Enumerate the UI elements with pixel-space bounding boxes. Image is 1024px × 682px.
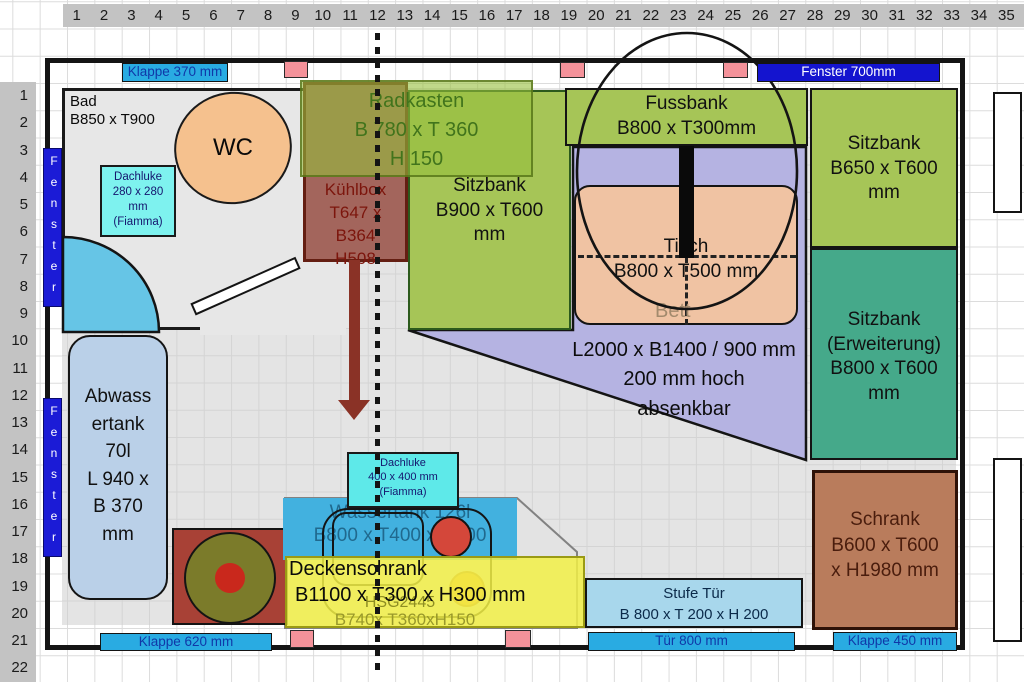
fussbank-label: FussbankB800 x T300mm (567, 90, 806, 141)
column-header[interactable]: 31 (883, 4, 910, 27)
klappe-370-bar[interactable]: Klappe 370 mm (122, 63, 228, 82)
sitzbank-erweiterung-label: Sitzbank(Erweiterung)B800 x T600mm (812, 250, 956, 407)
column-header[interactable]: 13 (391, 4, 418, 27)
column-header[interactable]: 6 (200, 4, 227, 27)
row-ruler: 12345678910111213141516171819202122 (0, 82, 36, 682)
column-header[interactable]: 28 (801, 4, 828, 27)
column-header[interactable]: 23 (665, 4, 692, 27)
column-header[interactable]: 35 (993, 4, 1020, 27)
column-header[interactable]: 15 (446, 4, 473, 27)
stove-burner-center (215, 563, 245, 593)
row-header[interactable]: 4 (0, 164, 36, 191)
row-header[interactable]: 20 (0, 600, 36, 627)
column-header[interactable]: 19 (555, 4, 582, 27)
deckenschrank-label-1: Deckenschrank (289, 558, 427, 581)
column-header[interactable]: 26 (747, 4, 774, 27)
hsg-burner-large (430, 516, 472, 558)
column-header[interactable]: 2 (90, 4, 117, 27)
row-header[interactable]: 13 (0, 409, 36, 436)
fussbank[interactable]: FussbankB800 x T300mm (565, 88, 808, 146)
row-ruler-band: 12345678910111213141516171819202122 (0, 82, 36, 682)
column-header[interactable]: 33 (938, 4, 965, 27)
column-header[interactable]: 27 (774, 4, 801, 27)
column-ruler-band: 1234567891011121314151617181920212223242… (63, 4, 1024, 27)
column-header[interactable]: 32 (911, 4, 938, 27)
row-header[interactable]: 17 (0, 518, 36, 545)
row-header[interactable]: 18 (0, 545, 36, 572)
column-header[interactable]: 5 (172, 4, 199, 27)
sitzbank-rechts-label: SitzbankB650 x T600mm (812, 90, 956, 206)
row-header[interactable]: 16 (0, 491, 36, 518)
row-header[interactable]: 1 (0, 82, 36, 109)
tuer-800-bar[interactable]: Tür 800 mm (588, 632, 795, 651)
bad-door-opening-bottom (200, 326, 346, 335)
row-header[interactable]: 10 (0, 327, 36, 354)
row-header[interactable]: 7 (0, 246, 36, 273)
column-header[interactable]: 12 (364, 4, 391, 27)
wall-marker-bottom-1 (290, 630, 314, 648)
column-header[interactable]: 1 (63, 4, 90, 27)
vehicle-centerline (375, 33, 380, 673)
column-header[interactable]: 16 (473, 4, 500, 27)
column-header[interactable]: 18 (528, 4, 555, 27)
schrank[interactable]: SchrankB600 x T600x H1980 mm (812, 470, 958, 630)
fenster-left-bottom-bar[interactable]: Fenster (43, 398, 62, 557)
column-ruler: 1234567891011121314151617181920212223242… (63, 4, 1024, 27)
radkasten-label: RadkastenB 780 x T 360H 150 (302, 82, 531, 174)
column-header[interactable]: 20 (583, 4, 610, 27)
column-header[interactable]: 9 (282, 4, 309, 27)
row-header[interactable]: 21 (0, 627, 36, 654)
schrank-label: SchrankB600 x T600x H1980 mm (815, 473, 955, 584)
dachluke-280[interactable]: Dachluke280 x 280mm(Fiamma) (100, 165, 176, 237)
column-header[interactable]: 34 (965, 4, 992, 27)
row-header[interactable]: 9 (0, 300, 36, 327)
column-header[interactable]: 11 (336, 4, 363, 27)
wc-label: WC (176, 94, 290, 202)
sitzbank-erweiterung[interactable]: Sitzbank(Erweiterung)B800 x T600mm (810, 248, 958, 460)
stufe-tuer-label: Stufe TürB 800 x T 200 x H 200 (587, 580, 801, 625)
column-header[interactable]: 29 (829, 4, 856, 27)
dachluke-400-label: Dachluke400 x 400 mm(Fiamma) (349, 454, 457, 499)
row-header[interactable]: 11 (0, 355, 36, 382)
fenster-700-bar[interactable]: Fenster 700mm (757, 63, 940, 82)
klappe-450-bar[interactable]: Klappe 450 mm (833, 632, 957, 651)
column-header[interactable]: 4 (145, 4, 172, 27)
klappe-620-bar[interactable]: Klappe 620 mm (100, 633, 272, 651)
radkasten[interactable]: RadkastenB 780 x T 360H 150 (300, 80, 533, 177)
row-header[interactable]: 22 (0, 654, 36, 681)
column-header[interactable]: 22 (637, 4, 664, 27)
arrow-head-icon (338, 400, 370, 420)
stove[interactable] (172, 528, 288, 625)
row-header[interactable]: 19 (0, 573, 36, 600)
arrow-shaft (349, 260, 360, 402)
column-header[interactable]: 25 (719, 4, 746, 27)
row-header[interactable]: 2 (0, 109, 36, 136)
column-header[interactable]: 3 (118, 4, 145, 27)
hsg-dim-label: B740x T360xH150 (315, 610, 495, 630)
column-header[interactable]: 14 (418, 4, 445, 27)
column-header[interactable]: 21 (610, 4, 637, 27)
floorplan-canvas: 1234567891011121314151617181920212223242… (0, 0, 1024, 682)
right-exterior-window-top[interactable] (993, 92, 1022, 213)
bett-label: Bett (655, 300, 725, 323)
column-header[interactable]: 8 (254, 4, 281, 27)
wall-marker-top-2 (560, 62, 585, 78)
wall-marker-top-3 (723, 62, 748, 78)
row-header[interactable]: 6 (0, 218, 36, 245)
wall-marker-bottom-2 (505, 630, 531, 648)
abwassertank[interactable]: Abwassertank70lL 940 xB 370mm (68, 335, 168, 600)
wall-marker-top-1 (284, 61, 308, 78)
bett-dimensions: L2000 x B1400 / 900 mm200 mm hochabsenkb… (558, 336, 810, 424)
row-header[interactable]: 5 (0, 191, 36, 218)
tisch-leg (679, 146, 694, 258)
deckenschrank-label-2: B1100 x T300 x H300 mm (295, 584, 526, 607)
dachluke-280-label: Dachluke280 x 280mm(Fiamma) (102, 167, 174, 230)
row-header[interactable]: 15 (0, 464, 36, 491)
abwassertank-label: Abwassertank70lL 940 xB 370mm (70, 337, 166, 548)
row-header[interactable]: 3 (0, 137, 36, 164)
row-header[interactable]: 14 (0, 436, 36, 463)
stufe-tuer[interactable]: Stufe TürB 800 x T 200 x H 200 (585, 578, 803, 628)
fenster-left-top-bar[interactable]: Fenster (43, 148, 62, 307)
row-header[interactable]: 8 (0, 273, 36, 300)
column-header[interactable]: 10 (309, 4, 336, 27)
column-header[interactable]: 17 (501, 4, 528, 27)
right-exterior-window-bottom[interactable] (993, 458, 1022, 642)
sitzbank-rechts[interactable]: SitzbankB650 x T600mm (810, 88, 958, 248)
wc-toilet[interactable]: WC (162, 79, 304, 216)
column-header[interactable]: 30 (856, 4, 883, 27)
dachluke-400[interactable]: Dachluke400 x 400 mm(Fiamma) (347, 452, 459, 508)
row-header[interactable]: 12 (0, 382, 36, 409)
column-header[interactable]: 7 (227, 4, 254, 27)
column-header[interactable]: 24 (692, 4, 719, 27)
